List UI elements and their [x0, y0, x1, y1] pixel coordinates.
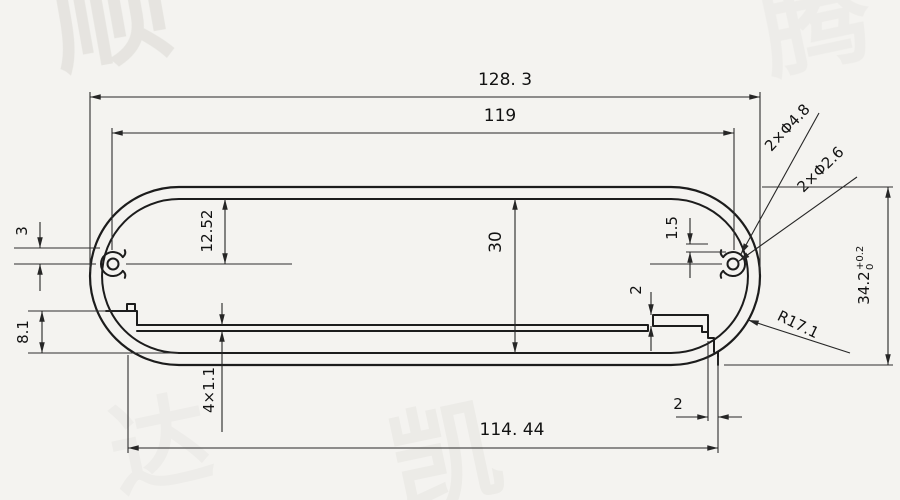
dim-screw-hole-pilot: 2×Φ2.6 [739, 143, 857, 261]
watermark-char: 凯 [378, 383, 512, 500]
dim-ledge-thickness-label: 2 [627, 285, 645, 295]
dim-left-shelf-label: 8.1 [14, 320, 32, 344]
dim-bottom-width-label: 114. 44 [480, 420, 545, 440]
dim-corner-radius-label: R17.1 [775, 307, 822, 342]
dim-boss-gap-label: 1.5 [663, 216, 681, 240]
dim-hole-center-depth-label: 12.52 [198, 210, 216, 253]
leader-line [739, 177, 857, 261]
dim-ribs-label: 4×1.1 [200, 367, 218, 413]
dim-corner-radius: R17.1 [748, 307, 850, 353]
right-ledge [653, 315, 714, 352]
left-step-notch [127, 304, 135, 311]
dim-ledge-thickness: 2 [627, 285, 651, 351]
dim-top-left-gap: 3 [13, 222, 100, 291]
dim-top-left-gap-label: 3 [13, 226, 31, 236]
screw-hole [728, 259, 739, 270]
dim-boss-gap: 1.5 [663, 216, 726, 278]
boss-ring [723, 252, 745, 276]
dim-bottom-step-label: 2 [673, 395, 683, 413]
watermark-char: 腾 [748, 0, 883, 96]
dim-bottom-step: 2 [673, 341, 742, 421]
dim-overall-height-tol-lower: 0 [865, 264, 876, 270]
dim-inner-height-label: 30 [486, 231, 506, 253]
boss-tip-curl [123, 250, 126, 278]
dim-screw-hole-outer-label: 2×Φ4.8 [761, 100, 814, 155]
boss-ring [101, 252, 123, 276]
watermark-char: 顺 [39, 0, 181, 93]
drawing-canvas: 顺 凯 腾 达 [0, 0, 900, 500]
dim-screw-hole-pilot-label: 2×Φ2.6 [793, 143, 847, 196]
dim-hole-pitch-label: 119 [484, 106, 516, 126]
dim-overall-width-label: 128. 3 [478, 70, 532, 90]
profile-outer-contour [90, 187, 760, 365]
screw-hole [108, 259, 119, 270]
profile-geometry [90, 187, 760, 365]
left-screw-boss [101, 250, 292, 278]
dim-ribs: 4×1.1 [200, 303, 222, 432]
dim-overall-width: 128. 3 [90, 70, 760, 274]
pcb-rails [137, 325, 648, 331]
profile-drawing-svg: 顺 凯 腾 达 [0, 0, 900, 500]
right-screw-boss [650, 250, 745, 278]
dim-hole-center-depth: 12.52 [198, 199, 225, 264]
dim-overall-height-label: 34.2 [855, 271, 873, 304]
dim-inner-height: 30 [486, 199, 515, 353]
